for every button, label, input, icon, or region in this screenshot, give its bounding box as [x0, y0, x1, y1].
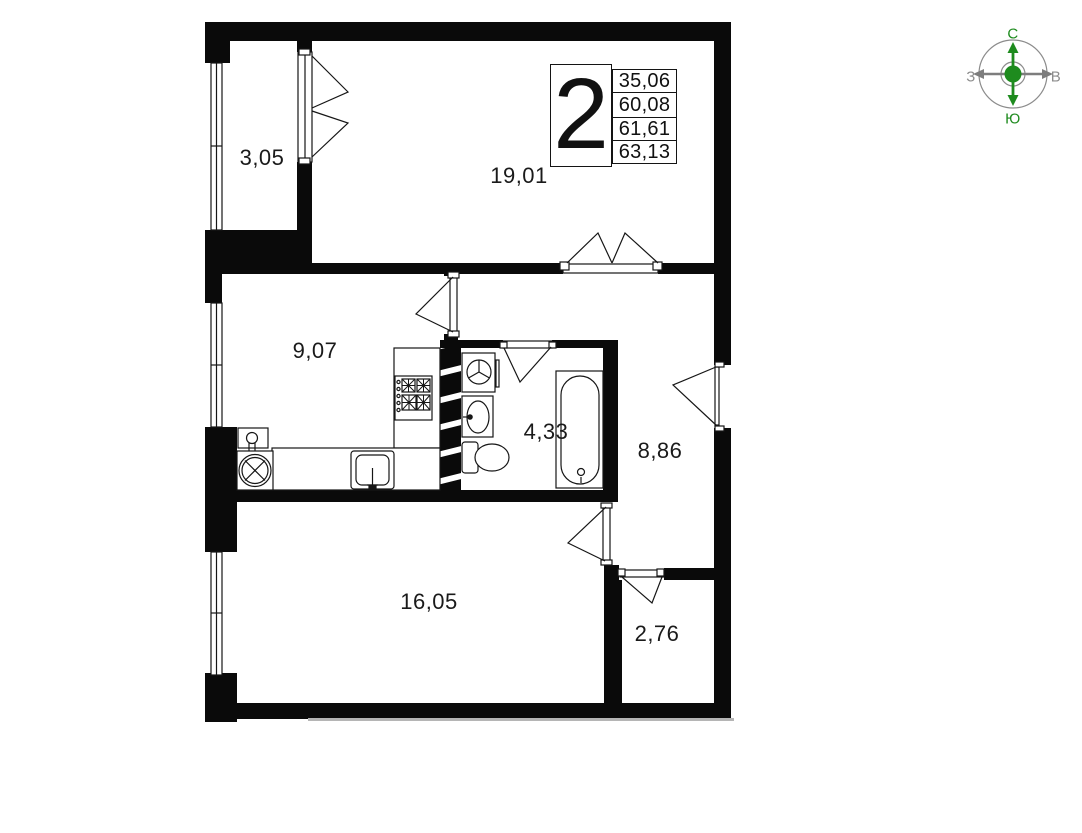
legend-area-total: 63,13: [612, 140, 677, 164]
room-label-kitchen: 9,07: [293, 338, 338, 364]
radiator-icon: [238, 428, 268, 451]
entrance-door-icon: [673, 362, 731, 431]
compass-west-label: З: [966, 69, 976, 86]
compass-rose-icon: [973, 40, 1053, 108]
balcony-door-icon: [298, 49, 348, 164]
washer-drum-icon: [462, 353, 499, 392]
living-room-door-icon: [560, 233, 662, 273]
legend-rooms-count: 2: [553, 64, 609, 164]
room-label-balcony: 3,05: [240, 145, 285, 171]
bathroom-door-icon: [500, 341, 556, 382]
wardrobe-door-icon: [618, 569, 664, 603]
room-label-bedroom: 16,05: [400, 589, 458, 615]
legend-rooms-box: 2: [550, 64, 612, 167]
legend-area-no-balcony: 60,08: [612, 92, 677, 118]
compass-south-label: Ю: [1005, 111, 1021, 128]
window-bedroom-icon: [211, 552, 222, 675]
floor-plan: 3,05 19,01 9,07 4,33 8,86 16,05 2,76 2 3…: [0, 0, 1082, 833]
compass-north-label: С: [1007, 26, 1018, 43]
window-kitchen-icon: [211, 303, 222, 427]
room-label-bathroom: 4,33: [524, 419, 569, 445]
legend-area-living: 35,06: [612, 69, 677, 93]
washing-machine-icon: [237, 451, 273, 490]
stove-icon: [395, 376, 432, 420]
wall-shadow-line: [308, 718, 734, 721]
legend-area-reduced: 61,61: [612, 117, 677, 141]
bathroom-sink-icon: [462, 396, 493, 437]
window-balcony-icon: [211, 63, 222, 230]
compass-east-label: В: [1051, 69, 1062, 86]
room-label-wardrobe: 2,76: [635, 621, 680, 647]
kitchen-door-icon: [416, 272, 459, 337]
room-label-living: 19,01: [490, 163, 548, 189]
windows-layer: [211, 63, 222, 675]
kitchen-sink-icon: [351, 451, 394, 489]
floor-plan-svg: [0, 0, 1082, 833]
kitchen-fixtures: [237, 348, 440, 490]
bedroom-door-icon: [568, 503, 612, 565]
toilet-icon: [462, 442, 509, 473]
room-label-hallway: 8,86: [638, 438, 683, 464]
ventilation-shaft-icon: [440, 348, 461, 490]
